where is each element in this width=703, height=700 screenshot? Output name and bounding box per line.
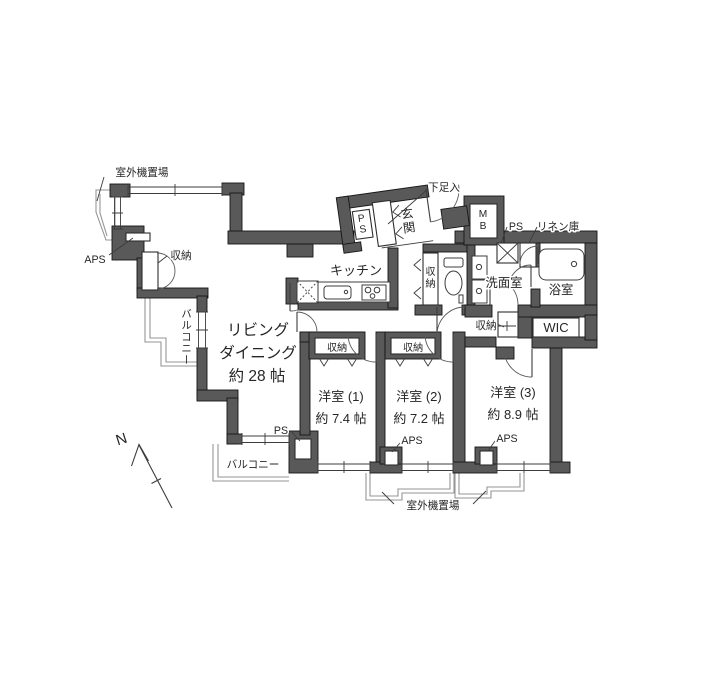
mb-label-2: B — [480, 221, 487, 232]
kitchen-counter-icon — [297, 281, 390, 303]
outdoor-unit-top-label: 室外機置場 — [116, 166, 169, 179]
hall-closet-label: 収納 — [475, 319, 496, 332]
toilet-closet-label-1: 収 — [425, 266, 435, 278]
shoe-closet-box — [372, 200, 396, 246]
window-west-balcony — [196, 312, 208, 348]
aps-bed3-label: APS — [496, 433, 517, 445]
north-label: N — [114, 430, 130, 450]
ps-bottom-box — [295, 439, 311, 459]
left-closet-box — [142, 252, 158, 290]
balcony-bottom-label: バルコニー — [227, 459, 280, 471]
balcony-left-label: バルコニー — [180, 308, 192, 366]
aps-left-label: APS — [84, 254, 105, 266]
kitchen-label: キッチン — [330, 263, 382, 278]
bed2-size-label: 約 7.2 帖 — [393, 411, 444, 426]
outdoor-unit-bottom-label: 室外機置場 — [407, 499, 460, 512]
north-compass: N — [114, 430, 172, 508]
shoe-closet-label: 下足入 — [428, 182, 460, 194]
bathroom-label: 浴室 — [549, 282, 574, 297]
toilet-closet-label-2: 納 — [425, 277, 435, 290]
bed2-label: 洋室 (2) — [396, 389, 442, 404]
window-bed3 — [497, 461, 550, 473]
ps-right-label: PS — [509, 221, 523, 233]
ps-bottom-label: PS — [274, 425, 288, 437]
bathtub-icon — [539, 249, 584, 280]
window-left — [112, 197, 123, 229]
floor-plan-page: P S 玄 関 — [0, 0, 703, 700]
living-label-2: ダイニング — [219, 344, 297, 362]
left-closet-label: 収納 — [170, 249, 191, 262]
washroom-label: 洗面室 — [486, 275, 523, 290]
linen-label: リネン庫 — [537, 220, 580, 233]
window-top — [128, 184, 222, 196]
floor-plan-canvas: P S 玄 関 — [0, 0, 703, 700]
shoe-closet-door-mark — [392, 205, 401, 218]
bed3-label: 洋室 (3) — [490, 385, 536, 400]
aps-bed3-box — [480, 451, 493, 465]
toilet-icon — [444, 258, 463, 303]
window-bed2 — [402, 461, 453, 473]
bed2-closet-label: 収納 — [403, 341, 423, 354]
mb-label-1: M — [479, 209, 488, 220]
genkan-label-2: 関 — [402, 220, 416, 236]
corridor-door-icon — [297, 312, 317, 332]
bed3-size-label: 約 8.9 帖 — [487, 407, 538, 422]
aps-left-box — [126, 233, 150, 241]
aps-bed2-box — [385, 451, 398, 465]
toilet-closet-door-mark — [414, 259, 421, 299]
living-size-label: 約 28 帖 — [229, 367, 286, 385]
wic-label: WIC — [543, 320, 568, 335]
hall-closet-box — [498, 312, 518, 337]
bed1-closet-label: 収納 — [327, 341, 347, 354]
bed1-label: 洋室 (1) — [318, 389, 364, 404]
aps-bed2-label: APS — [401, 435, 422, 447]
window-bed1 — [318, 461, 370, 473]
bed1-size-label: 約 7.4 帖 — [315, 411, 366, 426]
living-label-1: リビング — [227, 321, 289, 339]
